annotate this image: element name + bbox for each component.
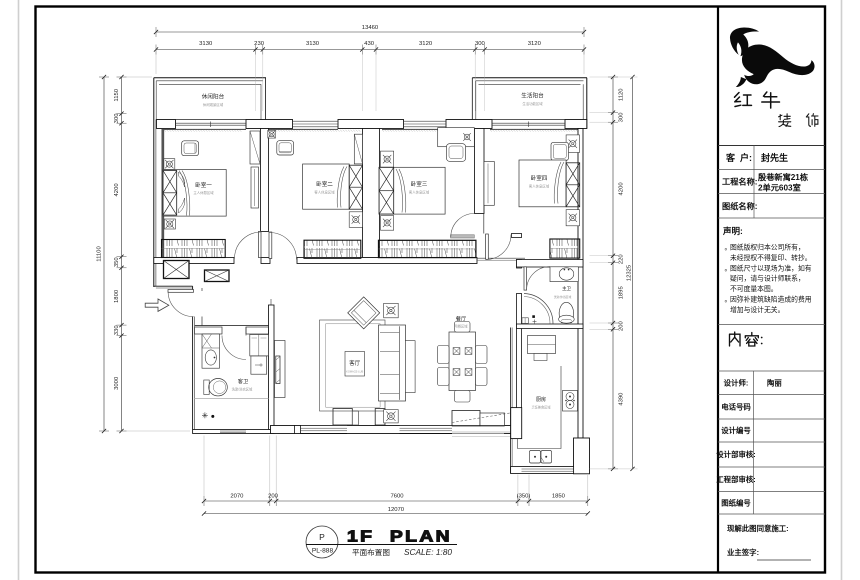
svg-text:3120: 3120 [528,41,542,47]
svg-text:1800: 1800 [114,289,120,303]
svg-text:2单元603室: 2单元603室 [758,183,801,193]
svg-text:疑问，请与设计师联系，: 疑问，请与设计师联系， [730,274,805,283]
svg-text:330: 330 [114,325,120,336]
svg-text:封先生: 封先生 [761,152,788,163]
svg-text:3130: 3130 [199,41,213,47]
svg-text:图纸尺寸以现场为准，如有: 图纸尺寸以现场为准，如有 [730,263,812,272]
svg-text:1120: 1120 [618,88,624,101]
svg-text:生活功能区域: 生活功能区域 [522,101,543,106]
svg-text:户:: 户: [740,152,752,163]
svg-text:图纸版权归本公司所有，: 图纸版权归本公司所有， [730,243,805,252]
svg-text:客人休息区域: 客人休息区域 [314,190,335,195]
svg-text:7600: 7600 [390,493,404,499]
svg-text:1F PLAN: 1F PLAN [347,529,452,546]
svg-text:图纸名称:: 图纸名称: [722,201,757,211]
svg-text:陶丽: 陶丽 [767,378,782,387]
svg-text:4200: 4200 [114,183,120,197]
svg-text:客: 客 [725,152,736,163]
svg-text:卧室二: 卧室二 [316,180,333,188]
svg-text:3120: 3120 [419,41,433,47]
svg-text:1895: 1895 [618,286,624,300]
svg-text:KOMACE-LUB: KOMACE-LUB [346,370,363,374]
svg-text:3130: 3130 [306,41,320,47]
svg-text:主人休憩区域: 主人休憩区域 [193,190,214,195]
svg-text:3000: 3000 [114,376,120,390]
svg-text:电话号码: 电话号码 [721,402,751,411]
svg-text:卧室三: 卧室三 [411,180,428,188]
svg-text:设计师:: 设计师: [724,378,749,387]
svg-text:不可度量本图。: 不可度量本图。 [730,284,778,293]
svg-text:300: 300 [618,112,624,123]
svg-text:12070: 12070 [388,507,405,513]
svg-text:220: 220 [618,254,624,265]
svg-text:用餐区域: 用餐区域 [454,324,468,329]
svg-text:PL-888: PL-888 [312,547,334,554]
svg-text:增加与设计无关。: 增加与设计无关。 [730,305,784,314]
svg-text:(350): (350) [517,493,531,499]
svg-text:工程名称:: 工程名称: [722,177,757,187]
svg-text:卧室一: 卧室一 [195,181,212,189]
svg-text:P: P [319,532,325,542]
svg-text:业主签字:: 业主签字: [727,548,759,557]
svg-text:设计部审核:: 设计部审核: [716,450,755,459]
svg-text:4390: 4390 [618,392,624,406]
svg-text:12325: 12325 [626,264,632,281]
svg-text:1150: 1150 [114,88,120,101]
svg-text:430: 430 [364,41,375,47]
svg-text:230: 230 [254,41,265,47]
svg-text:SCALE: 1:80: SCALE: 1:80 [404,547,452,557]
svg-text:休闲阳台: 休闲阳台 [202,93,225,101]
svg-text:350: 350 [114,257,120,268]
svg-text:因弥补建筑缺陷造成的费用: 因弥补建筑缺陷造成的费用 [730,295,812,304]
svg-text:客人休息区域: 客人休息区域 [409,190,430,195]
svg-text:客卫: 客卫 [238,377,248,385]
svg-text:13460: 13460 [362,25,379,31]
svg-text:11100: 11100 [97,246,103,262]
svg-text:设计编号: 设计编号 [721,426,751,435]
svg-text:4200: 4200 [618,182,624,196]
svg-text:生活阳台: 生活阳台 [521,92,544,100]
svg-text:200: 200 [618,320,624,331]
svg-text:图纸编号: 图纸编号 [721,498,751,507]
svg-text:2070: 2070 [230,493,244,499]
svg-text:殷巷新寓21栋: 殷巷新寓21栋 [758,172,809,182]
svg-text:卧室四: 卧室四 [531,174,548,182]
svg-text:300: 300 [475,41,486,47]
svg-text:现解此图同意施工:: 现解此图同意施工: [727,524,789,533]
svg-text:工程部审核:: 工程部审核: [716,475,755,484]
svg-text:平面布置图: 平面布置图 [352,547,390,557]
svg-text:洗漱/洗衣区域: 洗漱/洗衣区域 [232,387,253,392]
svg-text:客厅: 客厅 [349,359,360,367]
svg-text:厨房: 厨房 [536,396,546,403]
svg-text:1850: 1850 [552,493,566,499]
svg-text:200: 200 [268,493,279,499]
svg-text:300: 300 [114,113,120,124]
svg-text:客人休息区域: 客人休息区域 [529,184,550,189]
svg-text:未经授权不得复印、转抄。: 未经授权不得复印、转抄。 [730,253,812,262]
svg-text:烹饪美食区域: 烹饪美食区域 [531,405,551,410]
svg-text:休闲观景区域: 休闲观景区域 [203,102,224,107]
svg-text:洗漱/休浴区域: 洗漱/休浴区域 [554,295,572,299]
svg-text:餐厅: 餐厅 [456,315,466,323]
svg-text:主卫: 主卫 [562,285,571,291]
svg-text:声明:: 声明: [722,226,743,236]
